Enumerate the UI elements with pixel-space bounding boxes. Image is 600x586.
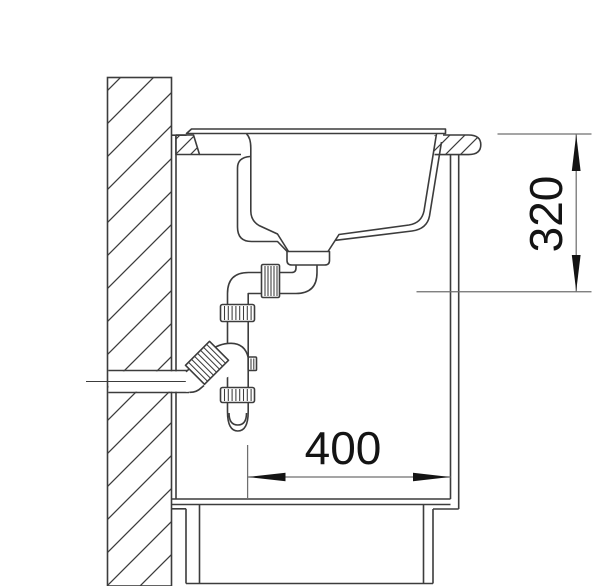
- sink-installation-drawing: 400 320: [0, 0, 600, 586]
- arrow-right-icon: [413, 473, 450, 482]
- trap-elbow-nut: [262, 265, 280, 298]
- bowl-right-outer-wall: [336, 142, 442, 240]
- plinth-left: [172, 505, 200, 584]
- sink-rim: [187, 129, 446, 134]
- arrow-up-icon: [572, 135, 581, 172]
- bowl-left-inner-wall: [247, 134, 289, 252]
- worktop-left-section: [172, 135, 242, 155]
- trap-union-nut-upper: [221, 305, 255, 322]
- drain-strainer: [287, 252, 330, 266]
- trap-union-nut-lower: [221, 388, 255, 403]
- siphon-trap: [186, 252, 330, 432]
- wall-hatch: [108, 78, 172, 586]
- dimension-400: 400: [248, 422, 451, 499]
- sink-bowl: [238, 134, 442, 252]
- wall-outlet-pipe: [86, 371, 192, 393]
- dimension-label-320: 320: [520, 176, 572, 253]
- wall-section: [108, 78, 177, 586]
- dimension-label-400: 400: [305, 422, 382, 474]
- trap-side-nut: [248, 357, 256, 371]
- drawing-canvas: 400 320: [0, 0, 600, 586]
- arrow-left-icon: [248, 473, 286, 482]
- dimension-320: 320: [417, 134, 592, 292]
- plinth-right: [424, 505, 459, 584]
- arrow-down-icon: [572, 255, 581, 291]
- cabinet-bottom-panel: [172, 499, 451, 505]
